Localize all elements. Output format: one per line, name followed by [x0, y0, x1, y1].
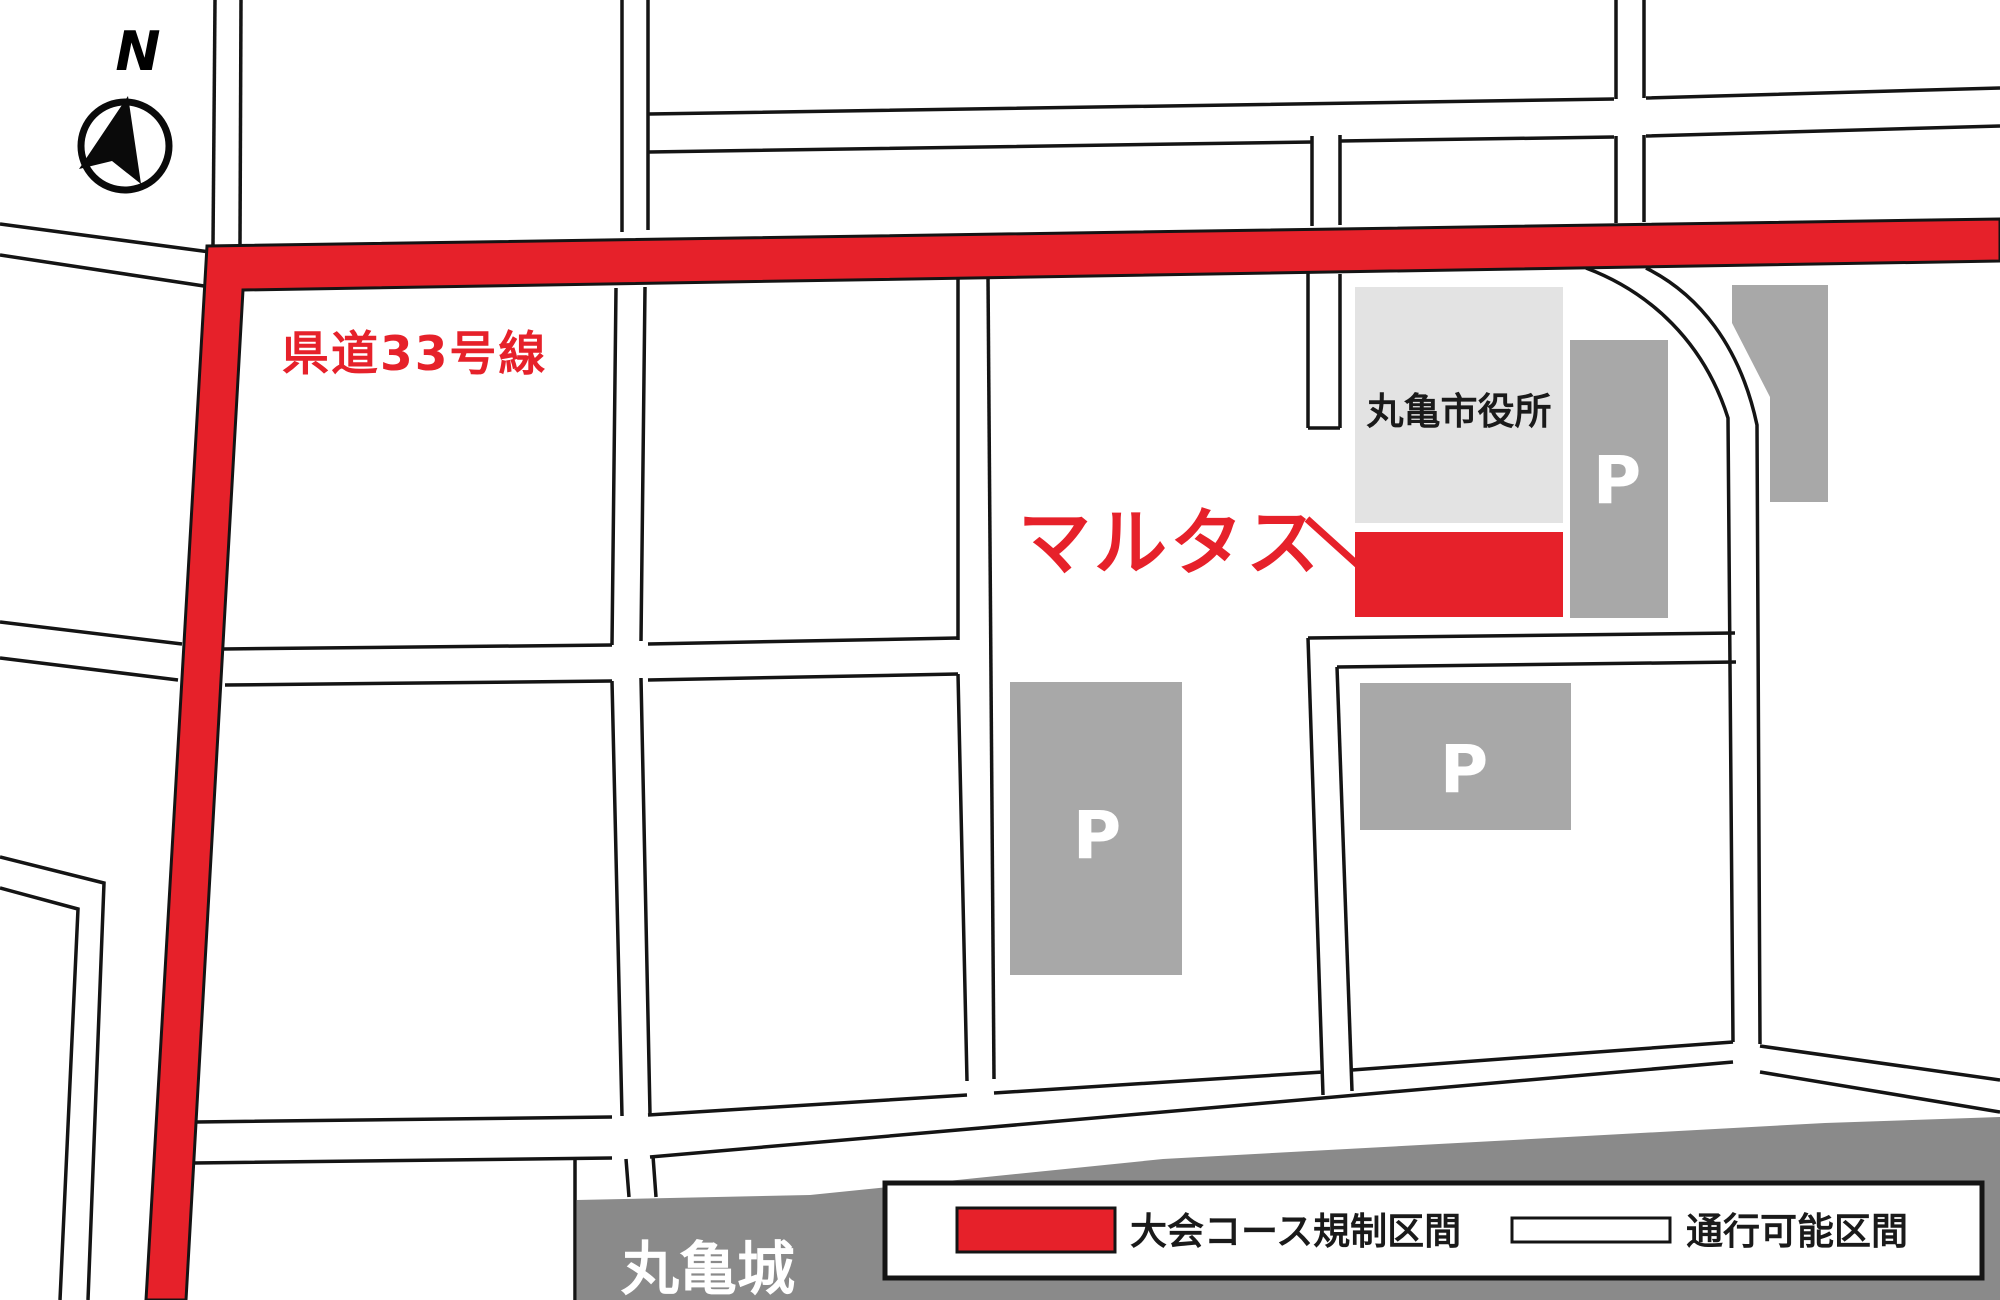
road-edge: [213, 0, 215, 245]
parking-icon: P: [1593, 442, 1641, 519]
marugame-course-map: 大会コース規制区間 通行可能区間 県道33号線 マルタス 丸亀市役所 丸亀城 P…: [0, 0, 2000, 1300]
legend-passable-label: 通行可能区間: [1686, 1210, 1908, 1253]
city-hall-label: 丸亀市役所: [1366, 390, 1552, 433]
legend-restricted-swatch: [957, 1208, 1115, 1252]
marutas-label: マルタス: [1018, 501, 1322, 586]
map-background: [0, 0, 2000, 1300]
legend-passable-swatch: [1512, 1218, 1670, 1242]
castle-label: 丸亀城: [620, 1235, 795, 1300]
legend: 大会コース規制区間 通行可能区間: [885, 1183, 1982, 1278]
legend-restricted-label: 大会コース規制区間: [1130, 1210, 1461, 1253]
prefectural-road-label: 県道33号線: [282, 327, 547, 382]
compass-label: N: [115, 20, 160, 83]
road-edge: [240, 0, 241, 244]
marutas-building: [1355, 532, 1563, 617]
parking-icon: P: [1440, 731, 1488, 808]
parking-icon: P: [1073, 797, 1121, 874]
